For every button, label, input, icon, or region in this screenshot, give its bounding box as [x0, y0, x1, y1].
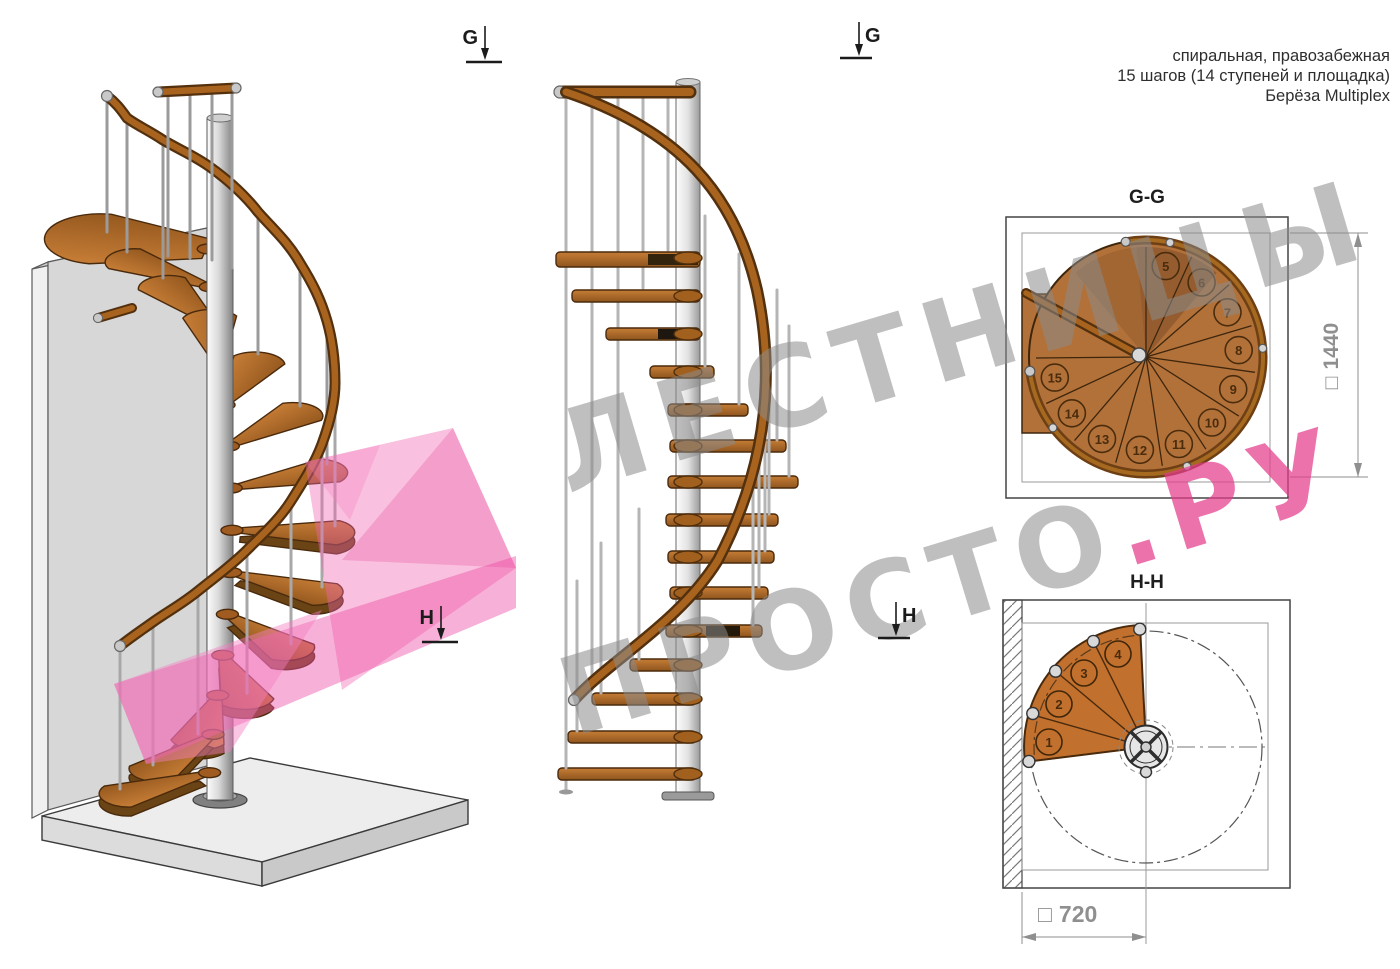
- dim-720-label: □720: [1038, 901, 1097, 927]
- marker-arrow-head: [481, 48, 489, 60]
- rail-ball-end: [1132, 348, 1146, 362]
- dim-arrow-down: [1354, 463, 1362, 477]
- handrail-end-cap: [115, 641, 126, 652]
- step-number: 2: [1055, 697, 1062, 712]
- wall-hatch: [1003, 600, 1022, 888]
- marker-letter: G: [865, 25, 881, 47]
- step-number: 3: [1080, 666, 1087, 681]
- marker-letter: H: [902, 605, 916, 627]
- plan-view-hh: H-H 1 2 3: [985, 565, 1400, 965]
- spec-line-steps: 15 шагов (14 ступеней и площадка): [930, 66, 1390, 86]
- dim-arrow-right: [1132, 933, 1146, 941]
- marker-letter: G: [462, 27, 478, 49]
- stair-elevation-view: [530, 62, 960, 820]
- elevation-handrail: [566, 92, 766, 706]
- marker-arrow-head: [855, 44, 863, 56]
- step-number: 8: [1235, 343, 1242, 358]
- dim-arrow-left: [1022, 933, 1036, 941]
- step-number: 13: [1095, 432, 1109, 447]
- step-number: 4: [1114, 647, 1122, 662]
- marker-arrow-head: [892, 624, 900, 636]
- step-number: 12: [1133, 443, 1147, 458]
- plan-gg-label: G-G: [1129, 187, 1165, 208]
- rim-handrail-cap: [1025, 366, 1035, 376]
- page: G-G: [0, 0, 1400, 969]
- marker-arrow-head: [437, 628, 445, 640]
- step-number: 15: [1048, 371, 1062, 386]
- spec-line-material: Берёза Multiplex: [930, 86, 1390, 106]
- plan-view-gg: G-G: [995, 180, 1400, 510]
- section-marker-g-left: G: [452, 20, 516, 72]
- rim-handrail-joint: [1121, 237, 1130, 246]
- marker-letter: H: [420, 607, 434, 629]
- step-number: 1: [1045, 735, 1052, 750]
- stair-3d-view: [10, 60, 530, 920]
- section-marker-h-right: H: [874, 598, 938, 650]
- section-marker-g-right: G: [838, 16, 902, 68]
- handrail-end-cap: [102, 91, 113, 102]
- spec-line-type: спиральная, правозабежная: [930, 46, 1390, 66]
- spec-text-block: спиральная, правозабежная 15 шагов (14 с…: [930, 46, 1390, 106]
- step-number: 5: [1162, 259, 1169, 274]
- plan-hh-label: H-H: [1130, 572, 1164, 593]
- step-number: 14: [1065, 406, 1080, 421]
- step-number: 7: [1224, 305, 1231, 320]
- step-number: 11: [1172, 437, 1186, 452]
- step-number: 9: [1230, 382, 1237, 397]
- step-number: 6: [1198, 276, 1205, 291]
- pole-collars: [674, 252, 702, 780]
- step-number: 10: [1205, 416, 1219, 431]
- section-marker-h-left: H: [410, 602, 474, 654]
- dim-arrow-up: [1354, 233, 1362, 247]
- baluster-foot: [559, 790, 573, 795]
- handrail-end-cap: [569, 695, 580, 706]
- dim-1440-label: □1440: [1320, 323, 1343, 389]
